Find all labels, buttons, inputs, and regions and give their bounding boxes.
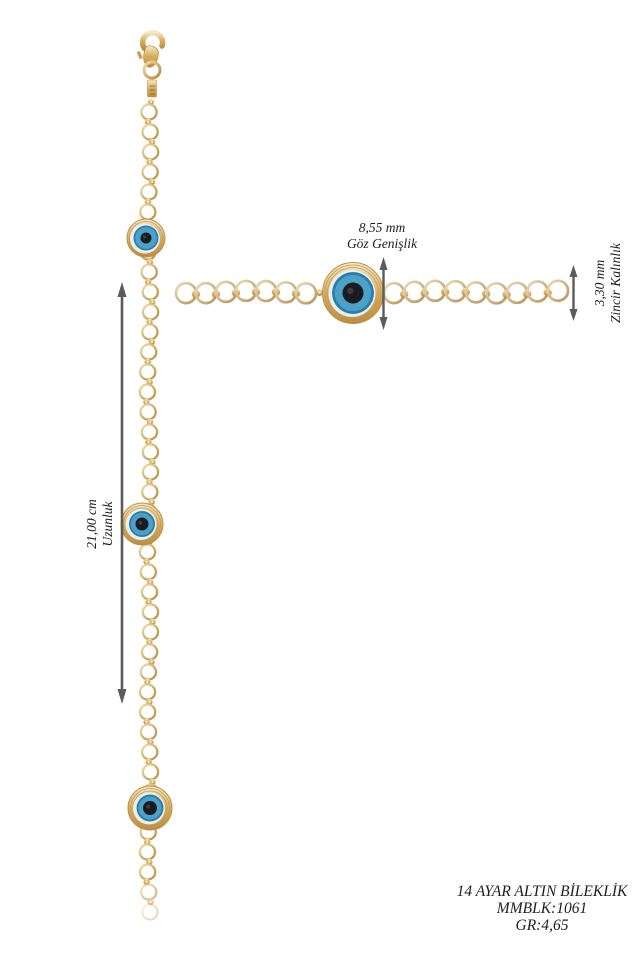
chain-thickness-annotation: 3,30 mm Zincir Kalınlık: [592, 213, 624, 353]
product-spec-image: 8,55 mm Göz Genişlik 3,30 mm Zincir Kalı…: [0, 0, 640, 960]
eye-width-value: 8,55 mm: [302, 220, 462, 236]
product-title: 14 AYAR ALTIN BİLEKLİK: [432, 883, 640, 900]
chain-thickness-value: 3,30 mm: [592, 213, 608, 353]
length-label: Uzunluk: [100, 464, 116, 584]
evil-eye-bead: [128, 786, 172, 830]
chain-thickness-label: Zincir Kalınlık: [608, 213, 624, 353]
evil-eye-bead: [121, 503, 163, 545]
length-annotation: 21,00 cm Uzunluk: [84, 464, 116, 584]
eye-width-label: Göz Genişlik: [302, 236, 462, 252]
product-weight: GR:4,65: [432, 917, 640, 934]
length-arrow: [118, 282, 127, 704]
evil-eye-bead: [323, 263, 384, 324]
product-info: 14 AYAR ALTIN BİLEKLİK MMBLK:1061 GR:4,6…: [432, 883, 640, 934]
eye-width-annotation: 8,55 mm Göz Genişlik: [302, 220, 462, 252]
product-code: MMBLK:1061: [432, 900, 640, 917]
chain-thickness-arrow: [570, 265, 578, 321]
evil-eye-bead: [127, 219, 165, 257]
lobster-clasp: [137, 33, 163, 105]
length-value: 21,00 cm: [84, 464, 100, 584]
